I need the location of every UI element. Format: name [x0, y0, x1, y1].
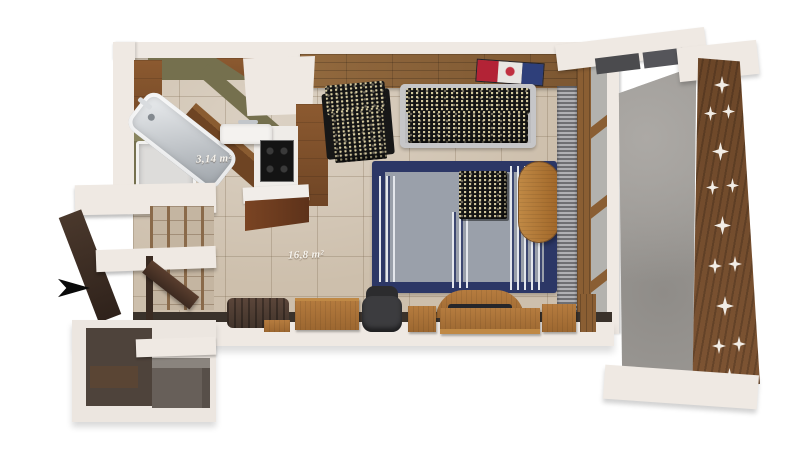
- screen-cutout-icon: [714, 216, 731, 235]
- stairwell-mid-wall: [136, 337, 217, 358]
- privacy-screen: [688, 58, 760, 394]
- screen-cutout-icon: [708, 258, 722, 274]
- wall-art-white-panel: [497, 61, 523, 84]
- screen-cutout-icon: [726, 178, 739, 193]
- screen-cutout-icon: [716, 296, 734, 316]
- floor-plan-render: 3,14 m²: [0, 0, 800, 450]
- sofa: [400, 84, 536, 148]
- screen-cutout-icon: [704, 106, 717, 121]
- stairwell-step: [90, 366, 138, 388]
- door-step-block: [264, 320, 290, 332]
- cooktop: [260, 140, 294, 182]
- kitchen-faucet-icon: [238, 120, 258, 124]
- wall-art-red-panel: [476, 60, 498, 82]
- staircase-lower-landing: [72, 320, 216, 422]
- convector-radiator: [557, 86, 577, 322]
- office-chair-seat: [362, 296, 402, 332]
- bed: [408, 290, 578, 336]
- nightstand-left: [408, 306, 436, 332]
- bed-frame: [440, 308, 540, 334]
- sofa-seat-cushions: [408, 111, 528, 143]
- rug-stripe-band-middle: [452, 212, 468, 288]
- screen-cutout-icon: [712, 142, 729, 161]
- screen-cutout-icon: [732, 336, 746, 352]
- screen-cutout-icon: [706, 180, 719, 195]
- bathtub-faucet-icon: [137, 97, 153, 111]
- balcony-corner-post: [607, 56, 619, 334]
- bathroom-area-label: 3,14 m²: [196, 152, 232, 165]
- office-chair: [362, 286, 402, 332]
- bathtub-drain: [146, 112, 156, 122]
- wall-art: [475, 59, 544, 87]
- screen-cutout-icon: [722, 104, 735, 119]
- armchair: [321, 80, 396, 166]
- screen-cutout-icon: [712, 338, 726, 354]
- window-sill-wood: [577, 58, 591, 330]
- wall-art-blue-panel: [522, 63, 544, 85]
- armchair-seat-cushion: [331, 107, 387, 163]
- coffee-table: [519, 162, 559, 242]
- rug-stripe-band-left: [379, 176, 395, 282]
- balcony-glass-panel-1: [595, 53, 641, 74]
- screen-cutout-icon: [714, 76, 730, 94]
- screen-cutout-icon: [728, 256, 742, 272]
- storage-chest: [295, 298, 359, 330]
- ottoman: [459, 171, 507, 219]
- main-room-area-label: 16,8 m²: [288, 248, 324, 261]
- nightstand-right: [542, 304, 576, 332]
- stairwell-cavity-right: [152, 358, 210, 408]
- window-side-cabinet: [580, 294, 596, 332]
- balcony-floor: [612, 52, 698, 396]
